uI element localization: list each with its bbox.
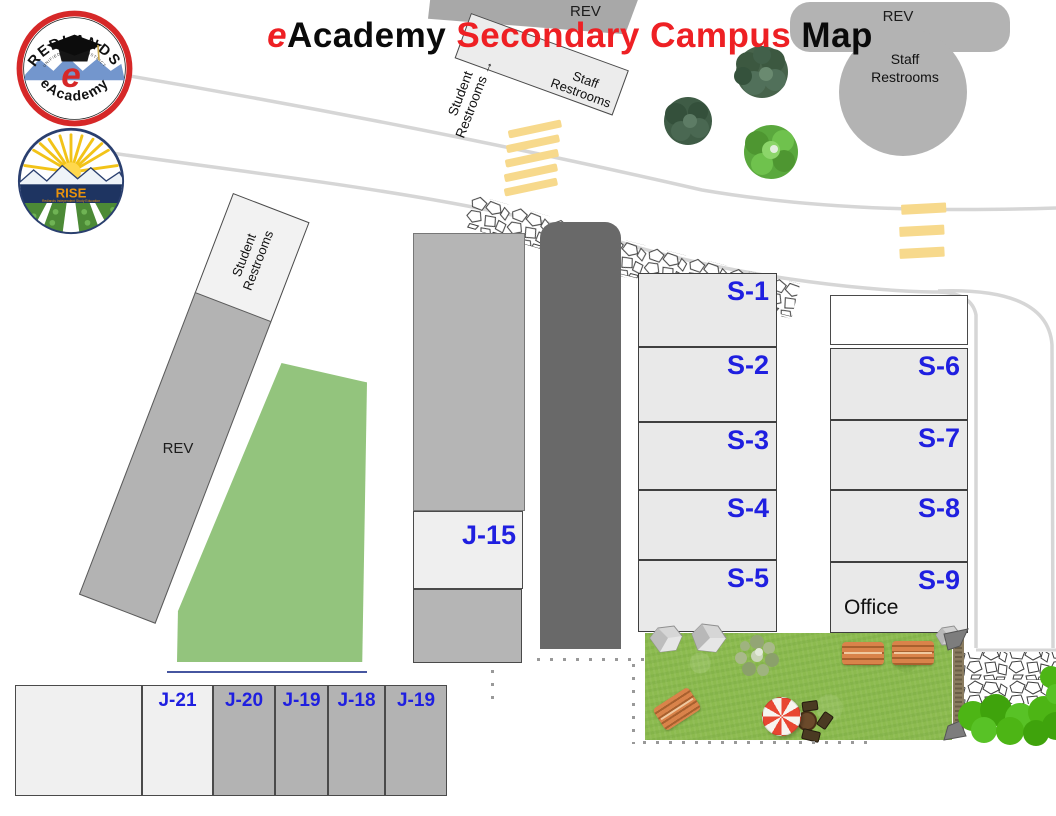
stone-path-bottom-right bbox=[964, 652, 1056, 704]
building-j15-south bbox=[413, 589, 522, 663]
room-j19b: J-19 bbox=[385, 685, 447, 796]
room-s9: S-9 Office bbox=[830, 562, 968, 633]
title-academy: Academy bbox=[287, 16, 446, 55]
page-title: eAcademy Secondary Campus Map bbox=[205, 16, 935, 56]
crosswalk-right bbox=[897, 202, 949, 258]
dotted-line-short bbox=[491, 670, 494, 704]
room-j19a: J-19 bbox=[275, 685, 328, 796]
umbrella bbox=[762, 697, 801, 736]
room-s6: S-6 bbox=[830, 348, 968, 420]
crosswalk-left bbox=[492, 119, 574, 196]
tree-bright bbox=[744, 125, 798, 179]
rise-logo: RISE Redlands Independent Study Educatio… bbox=[16, 126, 126, 236]
campus-map: eAcademy Secondary Campus Map REDLANDS U… bbox=[0, 0, 1056, 816]
room-j20: J-20 bbox=[213, 685, 275, 796]
room-s5: S-5 bbox=[638, 560, 777, 632]
rise-subtitle: Redlands Independent Study Education bbox=[42, 199, 100, 203]
room-s1: S-1 bbox=[638, 273, 777, 347]
tree-dark-2 bbox=[664, 97, 712, 145]
room-j18: J-18 bbox=[328, 685, 385, 796]
room-j15: J-15 bbox=[413, 511, 523, 589]
eacademy-logo: REDLANDS UNIFIED SCHOOL DISTRICT e eAcad… bbox=[16, 10, 133, 127]
room-j21: J-21 bbox=[142, 685, 213, 796]
picnic-table-1 bbox=[842, 642, 884, 665]
room-s4: S-4 bbox=[638, 490, 777, 560]
room-s2: S-2 bbox=[638, 347, 777, 422]
room-s7: S-7 bbox=[830, 420, 968, 490]
rev-label-left: REV bbox=[148, 440, 208, 457]
building-j15-north bbox=[413, 233, 525, 511]
building-dark-center bbox=[540, 222, 621, 649]
room-s3: S-3 bbox=[638, 422, 777, 490]
dotted-line-left bbox=[632, 664, 635, 744]
building-j-row-blank bbox=[15, 685, 142, 796]
dotted-line-bottom bbox=[643, 741, 873, 744]
dotted-line-top bbox=[537, 658, 649, 661]
title-e: e bbox=[267, 16, 287, 55]
bushes bbox=[958, 666, 1056, 746]
room-blank-right bbox=[830, 295, 968, 345]
title-map: Map bbox=[801, 16, 873, 55]
room-s8: S-8 bbox=[830, 490, 968, 562]
title-secondary-campus: Secondary Campus bbox=[446, 16, 801, 55]
staff-restrooms-label-center: Staff Restrooms bbox=[548, 63, 617, 112]
office-label: Office bbox=[844, 596, 898, 620]
boundary-line bbox=[167, 671, 367, 673]
picnic-table-2 bbox=[892, 641, 934, 665]
